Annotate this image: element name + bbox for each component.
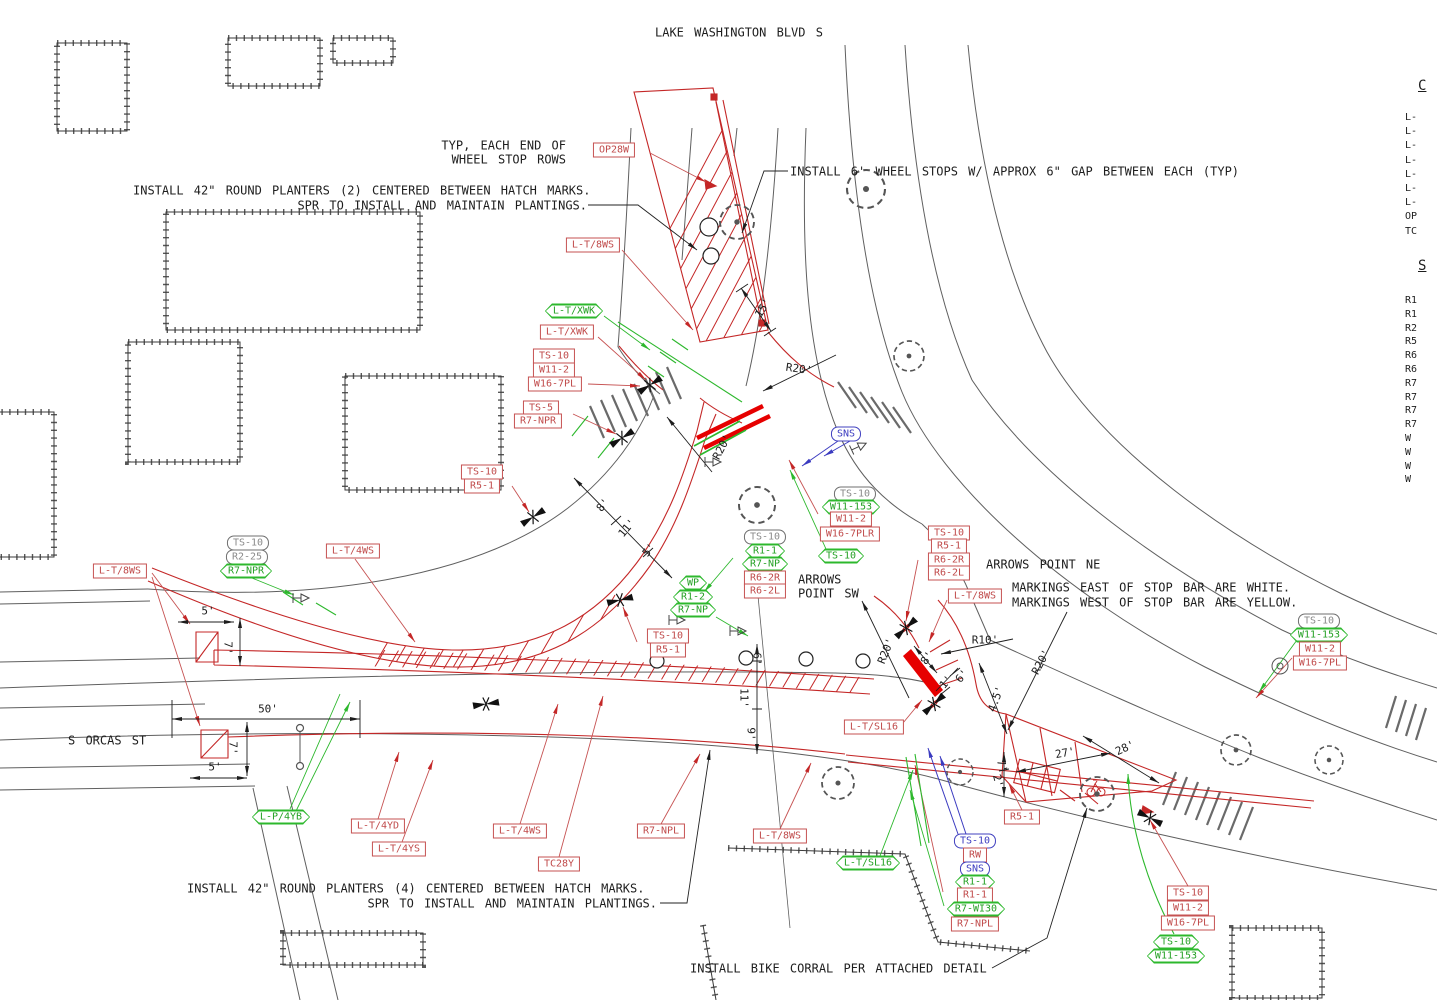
dimension-label: 7' bbox=[994, 758, 1010, 774]
note-typ-line1: TYP, EACH END OF bbox=[441, 138, 566, 152]
tag-r1-1: R1-1 bbox=[957, 888, 993, 903]
dimension-label: 6' bbox=[953, 667, 971, 686]
tag-l-t-4ws: L-T/4WS bbox=[326, 544, 380, 559]
plan-canvas: LAKE WASHINGTON BLVD STYP, EACH END OFWH… bbox=[0, 0, 1437, 1000]
tag-label: W11-153 bbox=[1291, 630, 1347, 641]
tag-l-t-4ys: L-T/4YS bbox=[372, 842, 426, 857]
tag-r2-25: R2-25 bbox=[226, 550, 268, 565]
legend-item: R7 bbox=[1405, 419, 1417, 430]
note-bike-corral: INSTALL BIKE CORRAL PER ATTACHED DETAIL bbox=[690, 961, 987, 975]
tag-l-t-4yd: L-T/4YD bbox=[351, 819, 405, 834]
tag-l-t-8ws: L-T/8WS bbox=[566, 238, 620, 253]
tag-r7-np: R7-NP bbox=[742, 557, 788, 572]
dimension-label: 5' bbox=[201, 605, 214, 618]
legend-item: L- bbox=[1405, 169, 1417, 180]
tag-tc28y: TC28Y bbox=[538, 857, 580, 872]
tag-ts-10: TS-10 bbox=[533, 349, 575, 364]
legend-item: R7 bbox=[1405, 405, 1417, 416]
legend-item: W bbox=[1405, 461, 1411, 472]
legend-item: L- bbox=[1405, 112, 1417, 123]
tag-ts-10: TS-10 bbox=[834, 487, 876, 502]
tag-w16-7pl: W16-7PL bbox=[1293, 656, 1347, 671]
legend-item: L- bbox=[1405, 126, 1417, 137]
legend-item: W bbox=[1405, 447, 1411, 458]
dimension-label: 15' bbox=[752, 296, 774, 320]
legend-item: OP bbox=[1405, 211, 1417, 222]
tag-ts-10: TS-10 bbox=[647, 629, 689, 644]
tag-label: R1-1 bbox=[956, 877, 994, 888]
tag-label: R7-NPR bbox=[221, 566, 271, 577]
note-planters-2-line2: SPR TO INSTALL AND MAINTAIN PLANTINGS. bbox=[297, 198, 587, 212]
note-planters-4-line2: SPR TO INSTALL AND MAINTAIN PLANTINGS. bbox=[367, 896, 657, 910]
tag-r1-2: R1-2 bbox=[673, 590, 713, 605]
legend-header-channelization: C bbox=[1418, 78, 1426, 94]
tag-label: R7-NP bbox=[671, 605, 715, 616]
tag-r5-1: R5-1 bbox=[650, 643, 686, 658]
tag-w11-2: W11-2 bbox=[533, 363, 575, 378]
tag-l-t-8ws: L-T/8WS bbox=[93, 564, 147, 579]
tag-ts-10: TS-10 bbox=[818, 549, 864, 564]
dimension-label: 7' bbox=[227, 741, 240, 754]
tag-ts-10: TS-10 bbox=[227, 536, 269, 551]
note-markings-east: MARKINGS EAST OF STOP BAR ARE WHITE. bbox=[1012, 580, 1290, 594]
dimension-label: R20' bbox=[1029, 647, 1053, 677]
tag-w11-2: W11-2 bbox=[1299, 642, 1341, 657]
tag-r5-1: R5-1 bbox=[1004, 810, 1040, 825]
legend-item: W bbox=[1405, 474, 1411, 485]
tag-label: L-P/4YB bbox=[253, 812, 309, 823]
legend-item: L- bbox=[1405, 183, 1417, 194]
tag-sns: SNS bbox=[960, 862, 990, 877]
legend-item: TC bbox=[1405, 226, 1417, 237]
legend-item: R7 bbox=[1405, 392, 1417, 403]
tag-w16-7pl: W16-7PL bbox=[1161, 916, 1215, 931]
note-planters-4-line1: INSTALL 42" ROUND PLANTERS (4) CENTERED … bbox=[187, 881, 644, 895]
legend-item: L- bbox=[1405, 155, 1417, 166]
note-wheel-stops: INSTALL 6' WHEEL STOPS W/ APPROX 6" GAP … bbox=[790, 164, 1239, 178]
note-arrows-ne: ARROWS POINT NE bbox=[986, 557, 1100, 571]
legend-item: R7 bbox=[1405, 378, 1417, 389]
tag-wp: WP bbox=[679, 576, 707, 591]
legend-item: L- bbox=[1405, 197, 1417, 208]
tag-label: R7-WI30 bbox=[948, 904, 1004, 915]
tag-ts-10: TS-10 bbox=[744, 530, 786, 545]
dimension-label: 11' bbox=[616, 516, 639, 540]
tag-label: L-T/SL16 bbox=[837, 858, 899, 869]
note-arrows-sw-line2: POINT SW bbox=[798, 586, 859, 600]
dimension-label: 27' bbox=[1054, 745, 1076, 761]
note-planters-2-line1: INSTALL 42" ROUND PLANTERS (2) CENTERED … bbox=[133, 183, 590, 197]
dimension-label: R20' bbox=[710, 432, 734, 462]
note-arrows-sw-line1: ARROWS bbox=[798, 572, 841, 586]
tag-w11-153: W11-153 bbox=[1290, 628, 1348, 643]
dimension-label: 8' bbox=[594, 496, 612, 515]
tag-r7-np: R7-NP bbox=[670, 603, 716, 618]
tag-l-p-4yb: L-P/4YB bbox=[252, 810, 310, 825]
tag-l-t-8ws: L-T/8WS bbox=[753, 829, 807, 844]
legend-item: R6 bbox=[1405, 364, 1417, 375]
tag-label: R7-NP bbox=[743, 559, 787, 570]
tag-l-t-4ws: L-T/4WS bbox=[493, 824, 547, 839]
dimension-label: 11' bbox=[738, 688, 751, 708]
dimension-label: 5' bbox=[208, 761, 221, 774]
tag-r6-2l: R6-2L bbox=[928, 566, 970, 581]
dimension-label: 5' bbox=[640, 541, 658, 560]
tag-r7-npl: R7-NPL bbox=[951, 917, 999, 932]
dimension-label: 2' bbox=[990, 773, 1006, 789]
dimension-label: 4.5' bbox=[985, 684, 1006, 713]
tag-l-t-sl16: L-T/SL16 bbox=[836, 856, 900, 871]
legend-item: R2 bbox=[1405, 323, 1417, 334]
tag-ts-10: TS-10 bbox=[1298, 614, 1340, 629]
dimension-label: 9' bbox=[745, 727, 758, 740]
tag-label: R1-1 bbox=[746, 546, 784, 557]
legend-item: R1 bbox=[1405, 309, 1417, 320]
tag-ts-10: TS-10 bbox=[461, 465, 503, 480]
legend-header-signs: S bbox=[1418, 258, 1426, 274]
tag-l-t-xwk: L-T/XWK bbox=[540, 325, 594, 340]
dimension-label: 28' bbox=[1113, 738, 1137, 758]
tag-label: TS-10 bbox=[1154, 937, 1198, 948]
tag-r7-npr: R7-NPR bbox=[220, 564, 272, 579]
tag-sns: SNS bbox=[831, 427, 861, 442]
tag-label: R1-2 bbox=[674, 592, 712, 603]
note-typ-line2: WHEEL STOP ROWS bbox=[452, 152, 566, 166]
tag-ts-10: TS-10 bbox=[954, 834, 996, 849]
dimension-label: 8' bbox=[918, 649, 936, 667]
tag-op28w: OP28W bbox=[593, 143, 635, 158]
annotations-layer: LAKE WASHINGTON BLVD STYP, EACH END OFWH… bbox=[0, 0, 1437, 1000]
tag-label: TS-10 bbox=[819, 551, 863, 562]
tag-label: WP bbox=[680, 578, 706, 589]
legend-item: W bbox=[1405, 433, 1411, 444]
dimension-label: 6' bbox=[751, 652, 764, 665]
tag-w11-2: W11-2 bbox=[830, 512, 872, 527]
dimension-label: R20' bbox=[875, 636, 897, 665]
legend-column: C S L-L-L-L-L-L-L-OPTCR1R1R2R5R6R6R7R7R7… bbox=[1402, 0, 1437, 1000]
tag-w11-2: W11-2 bbox=[1167, 901, 1209, 916]
tag-ts-10: TS-10 bbox=[1167, 886, 1209, 901]
tag-r7-wi30: R7-WI30 bbox=[947, 902, 1005, 917]
note-markings-west: MARKINGS WEST OF STOP BAR ARE YELLOW. bbox=[1012, 595, 1297, 609]
legend-item: R1 bbox=[1405, 295, 1417, 306]
dimension-label: 50' bbox=[258, 703, 278, 716]
tag-rw: RW bbox=[963, 848, 987, 863]
tag-l-t-sl16: L-T/SL16 bbox=[844, 720, 904, 735]
tag-ts-10: TS-10 bbox=[1153, 935, 1199, 950]
dimension-label: 7' bbox=[222, 641, 235, 654]
tag-r6-2l: R6-2L bbox=[744, 584, 786, 599]
legend-item: R6 bbox=[1405, 350, 1417, 361]
tag-l-t-8ws: L-T/8WS bbox=[948, 589, 1002, 604]
dimension-label: R20' bbox=[785, 361, 813, 378]
tag-w16-7pl: W16-7PL bbox=[528, 377, 582, 392]
tag-r5-1: R5-1 bbox=[931, 539, 967, 554]
tag-label: L-T/XWK bbox=[546, 306, 602, 317]
tag-r7-npr: R7-NPR bbox=[514, 414, 562, 429]
legend-item: L- bbox=[1405, 140, 1417, 151]
tag-r1-1: R1-1 bbox=[745, 544, 785, 559]
tag-label: W11-153 bbox=[1148, 951, 1204, 962]
tag-r7-npl: R7-NPL bbox=[637, 824, 685, 839]
street-title-lake-washington: LAKE WASHINGTON BLVD S bbox=[655, 25, 823, 39]
tag-l-t-xwk: L-T/XWK bbox=[545, 304, 603, 319]
dimension-label: R10' bbox=[972, 634, 999, 647]
legend-item: R5 bbox=[1405, 336, 1417, 347]
street-title-s-orcas: S ORCAS ST bbox=[68, 733, 146, 747]
tag-w16-7plr: W16-7PLR bbox=[820, 527, 880, 542]
tag-w11-153: W11-153 bbox=[1147, 949, 1205, 964]
tag-r5-1: R5-1 bbox=[464, 479, 500, 494]
